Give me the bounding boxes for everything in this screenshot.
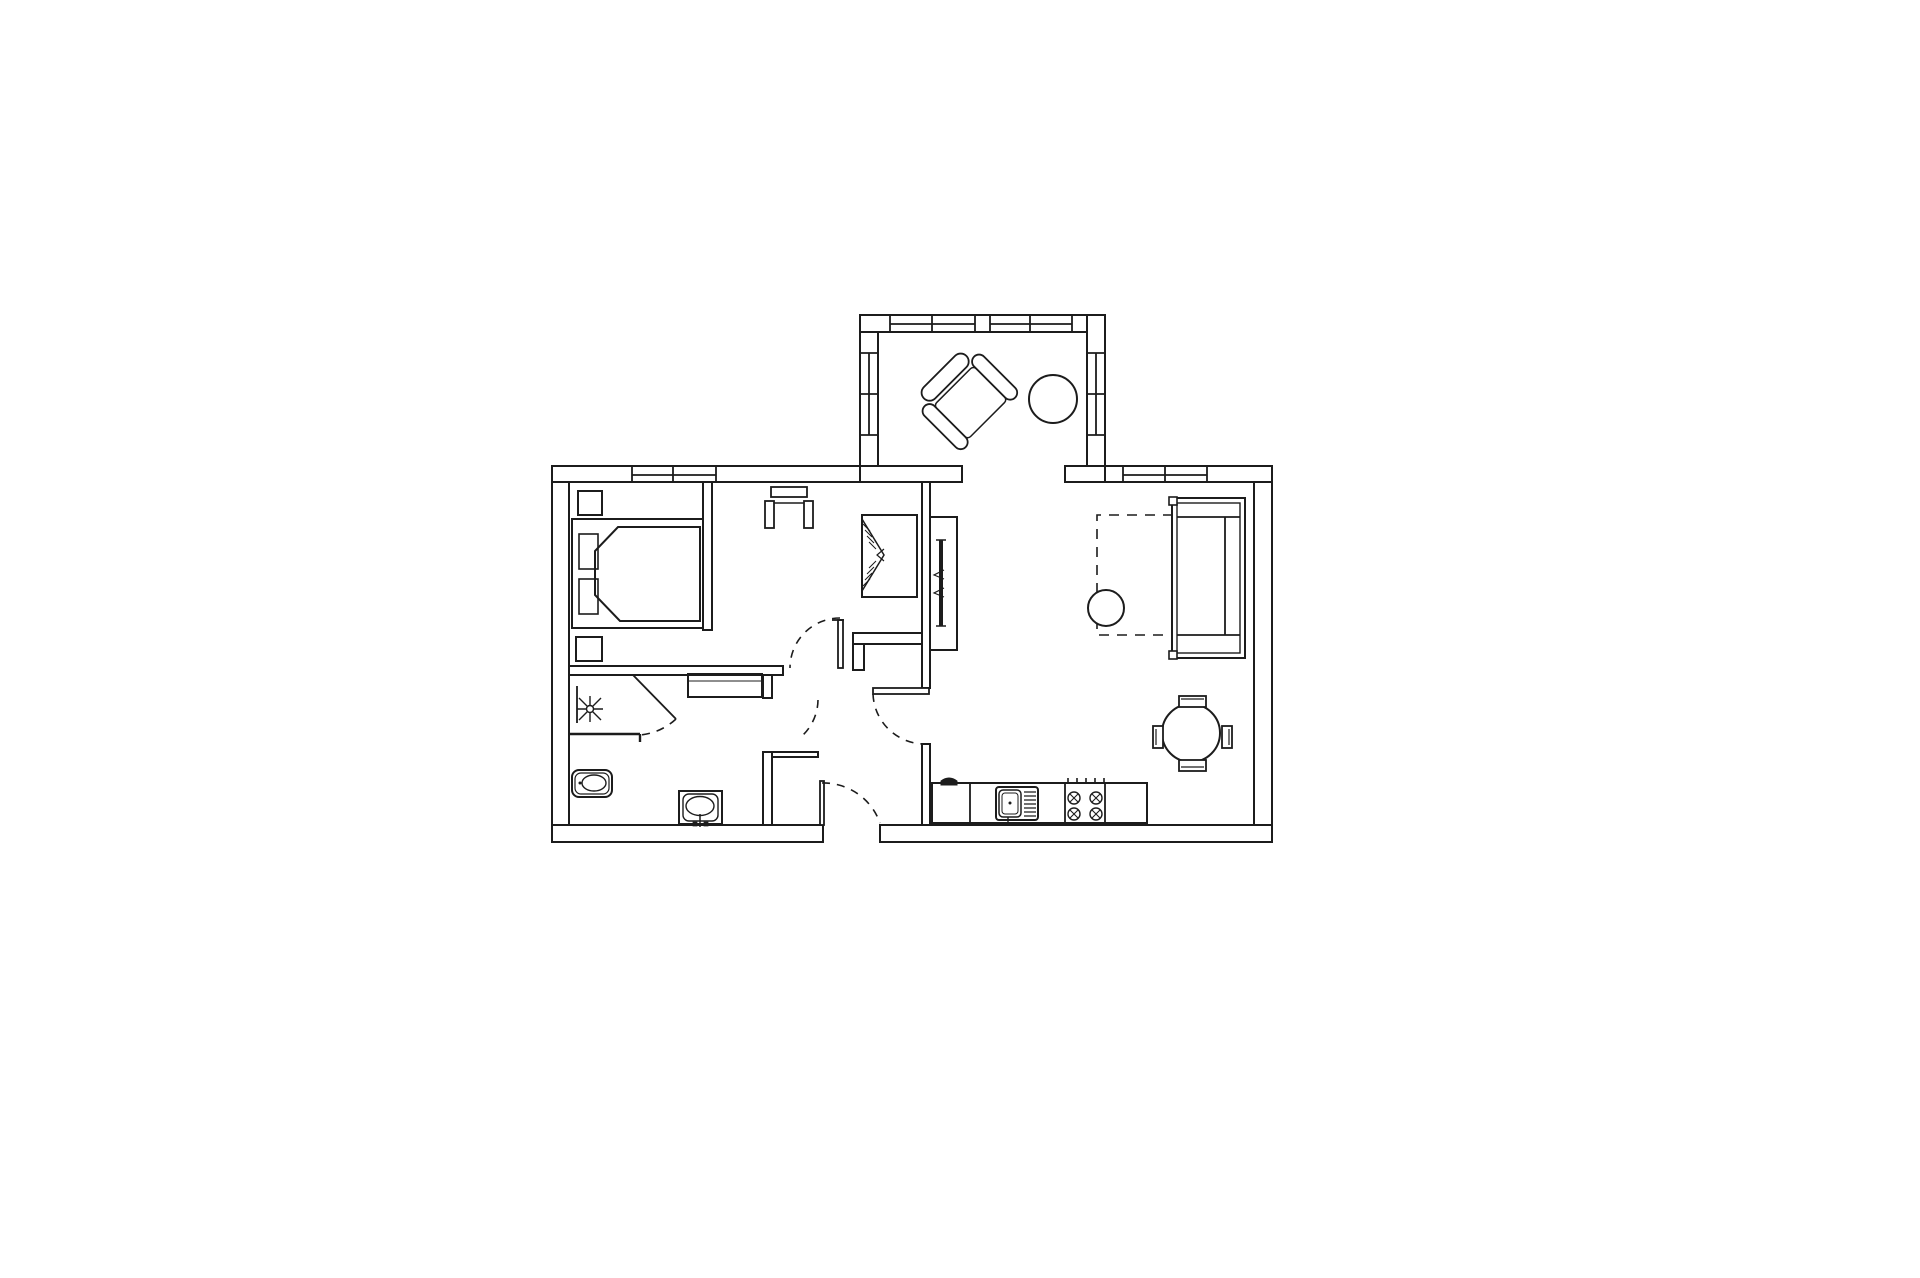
wall-west (552, 466, 569, 842)
sunroom-armchair-arm-right (969, 352, 1020, 403)
stove-knobs (1068, 778, 1104, 782)
bath-door-swing-arc (640, 719, 676, 735)
bedroom-tv-body (862, 515, 917, 597)
toilet-valve-dot (579, 782, 582, 785)
bed-blanket (595, 527, 700, 621)
sofa-tab-top (1169, 497, 1177, 505)
dining-chair-north (1179, 696, 1206, 707)
wall-bottom-left (552, 825, 823, 842)
sofa-outer (1172, 498, 1245, 658)
dining-chair-south (1179, 760, 1206, 771)
bedroom-tv-cable (877, 549, 884, 561)
media-console (930, 517, 957, 650)
sunroom-armchair-seat (934, 366, 1008, 440)
living-tv-screen (939, 540, 943, 626)
shower-half-wall (569, 734, 640, 742)
wall-top-mid-left (860, 466, 962, 482)
bed-frame (572, 519, 703, 628)
closet-box-bottom (576, 637, 602, 661)
hall-wall-lower (922, 744, 930, 825)
dining-table (1162, 704, 1220, 762)
floorplan-page (0, 0, 1920, 1278)
kitchen-counter (932, 783, 1147, 823)
wall-top-right (1105, 466, 1272, 482)
sofa-inner (1177, 503, 1240, 653)
wall-bottom-right (880, 825, 1272, 842)
side-table (1088, 590, 1124, 626)
dining-chair-back-lines (1156, 699, 1229, 767)
dining-chair-west (1153, 726, 1163, 748)
desk-chair-back (771, 487, 807, 497)
closet-box-top (578, 491, 602, 515)
sofa-tab-bottom (1169, 651, 1177, 659)
vestibule-door-swing-arc (803, 700, 818, 735)
hall-wall-upper (922, 482, 930, 688)
kitchen-sink-dot (1009, 802, 1012, 805)
desk-chair-arm-left (765, 501, 774, 528)
entry-door-swing-arc (822, 783, 880, 823)
stove-burner-crosses (1070, 794, 1100, 818)
kitchen-sink-faucet (1003, 817, 1013, 826)
hall-pier-wall-h (853, 633, 922, 644)
sunroom-table (1029, 375, 1077, 423)
entry-door-leaf (820, 781, 824, 825)
wall-top-left (552, 466, 860, 482)
bath-door-leaf (633, 675, 676, 719)
kitchen-door-swing-arc (873, 694, 927, 744)
bath-sink-bowl (686, 797, 714, 816)
kitchen-door-leaf (873, 688, 929, 694)
bedroom-door-leaf (838, 620, 843, 668)
kitchen-sink-rack (1024, 792, 1036, 816)
sunroom-armchair-arm-left (920, 401, 971, 452)
desk-chair-arm-right (804, 501, 813, 528)
vestibule-wall (772, 752, 818, 757)
wall-top-mid-right (1065, 466, 1105, 482)
bedroom-tv-hatch (863, 524, 876, 586)
wall-east (1254, 482, 1272, 825)
hall-pier-wall-v (853, 644, 864, 670)
sofa-cushion-lines (1177, 517, 1240, 635)
shower-head-center (587, 706, 594, 713)
floorplan-drawing (0, 0, 1920, 1278)
bath-wall-stub-upper (763, 675, 772, 698)
bedroom-door-swing-arc (790, 618, 840, 668)
sunroom-armchair-back (918, 350, 972, 404)
bedroom-partition-wall (703, 482, 712, 630)
toilet-bowl (582, 775, 606, 791)
kitchen-counter-item (941, 778, 957, 785)
bath-cabinet (688, 674, 762, 697)
bath-wall-stub-lower (763, 752, 772, 825)
dining-chair-east (1222, 726, 1232, 748)
